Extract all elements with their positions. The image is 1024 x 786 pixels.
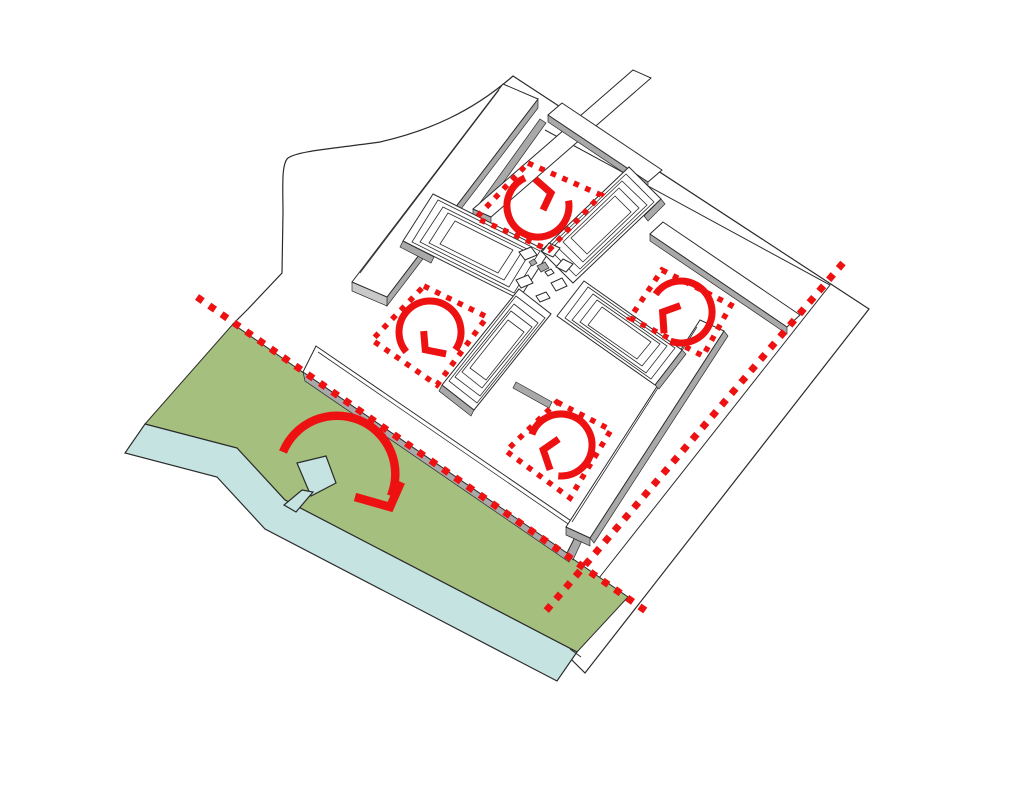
site-circulation-diagram [0, 0, 1024, 786]
